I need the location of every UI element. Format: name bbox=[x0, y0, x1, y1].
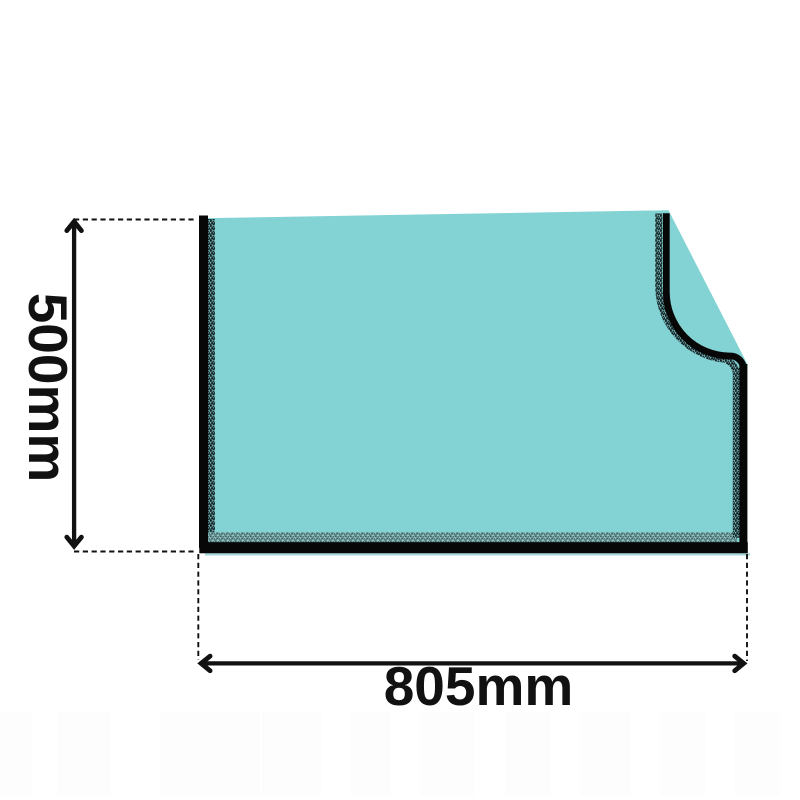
svg-text:805mm: 805mm bbox=[384, 655, 574, 717]
svg-text:500mm: 500mm bbox=[17, 293, 79, 483]
